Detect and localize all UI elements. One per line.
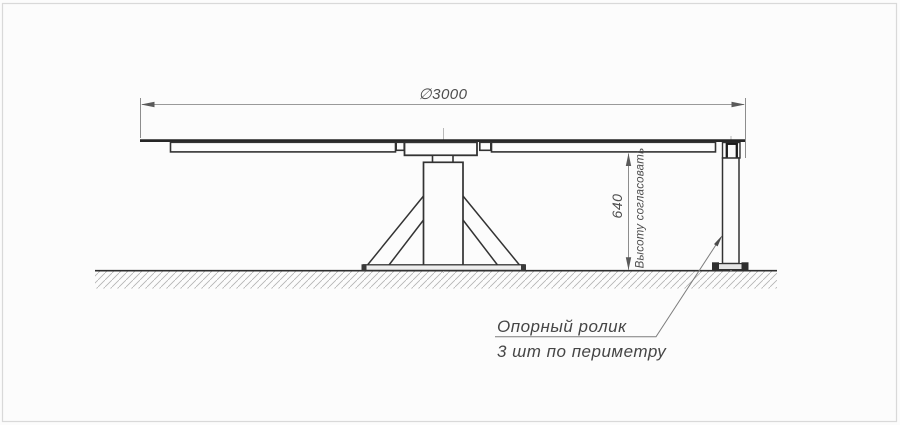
dim-arrow-up — [626, 153, 631, 166]
roller-base-end-left — [712, 262, 719, 270]
base-plate-end-right — [521, 264, 526, 270]
technical-drawing: ∅3000 640 Высоту согласовать Опорный рол… — [0, 0, 900, 425]
dim-arrow-left — [141, 102, 155, 108]
diameter-dimension-label: ∅3000 — [393, 85, 493, 103]
pedestal-column — [424, 162, 464, 265]
frame-beam-right — [492, 142, 716, 152]
roller-post — [723, 158, 740, 264]
dim-arrow-right — [732, 102, 746, 108]
base-plate-end-left — [362, 264, 367, 270]
roller-stand — [712, 143, 749, 271]
dimension-height — [626, 153, 631, 270]
height-agree-note: Высоту согласовать — [635, 126, 647, 291]
leader-arrow — [714, 235, 723, 246]
frame-beam-left — [171, 142, 396, 152]
dim-arrow-down — [626, 257, 631, 270]
roller-callout-line1: Опорный ролик — [497, 317, 627, 337]
frame-joint-left — [396, 142, 404, 150]
roller-callout-line2: 3 шт по периметру — [497, 342, 666, 362]
ground — [95, 271, 777, 289]
drawing-linework — [0, 0, 900, 425]
roller-base-end-right — [742, 262, 749, 270]
pedestal — [362, 162, 527, 270]
frame-joint-right — [480, 142, 491, 150]
pedestal-base-plate — [364, 265, 525, 271]
hub-spigot — [433, 155, 454, 162]
height-dimension-value: 640 — [609, 146, 625, 266]
hub-flange — [405, 142, 478, 155]
